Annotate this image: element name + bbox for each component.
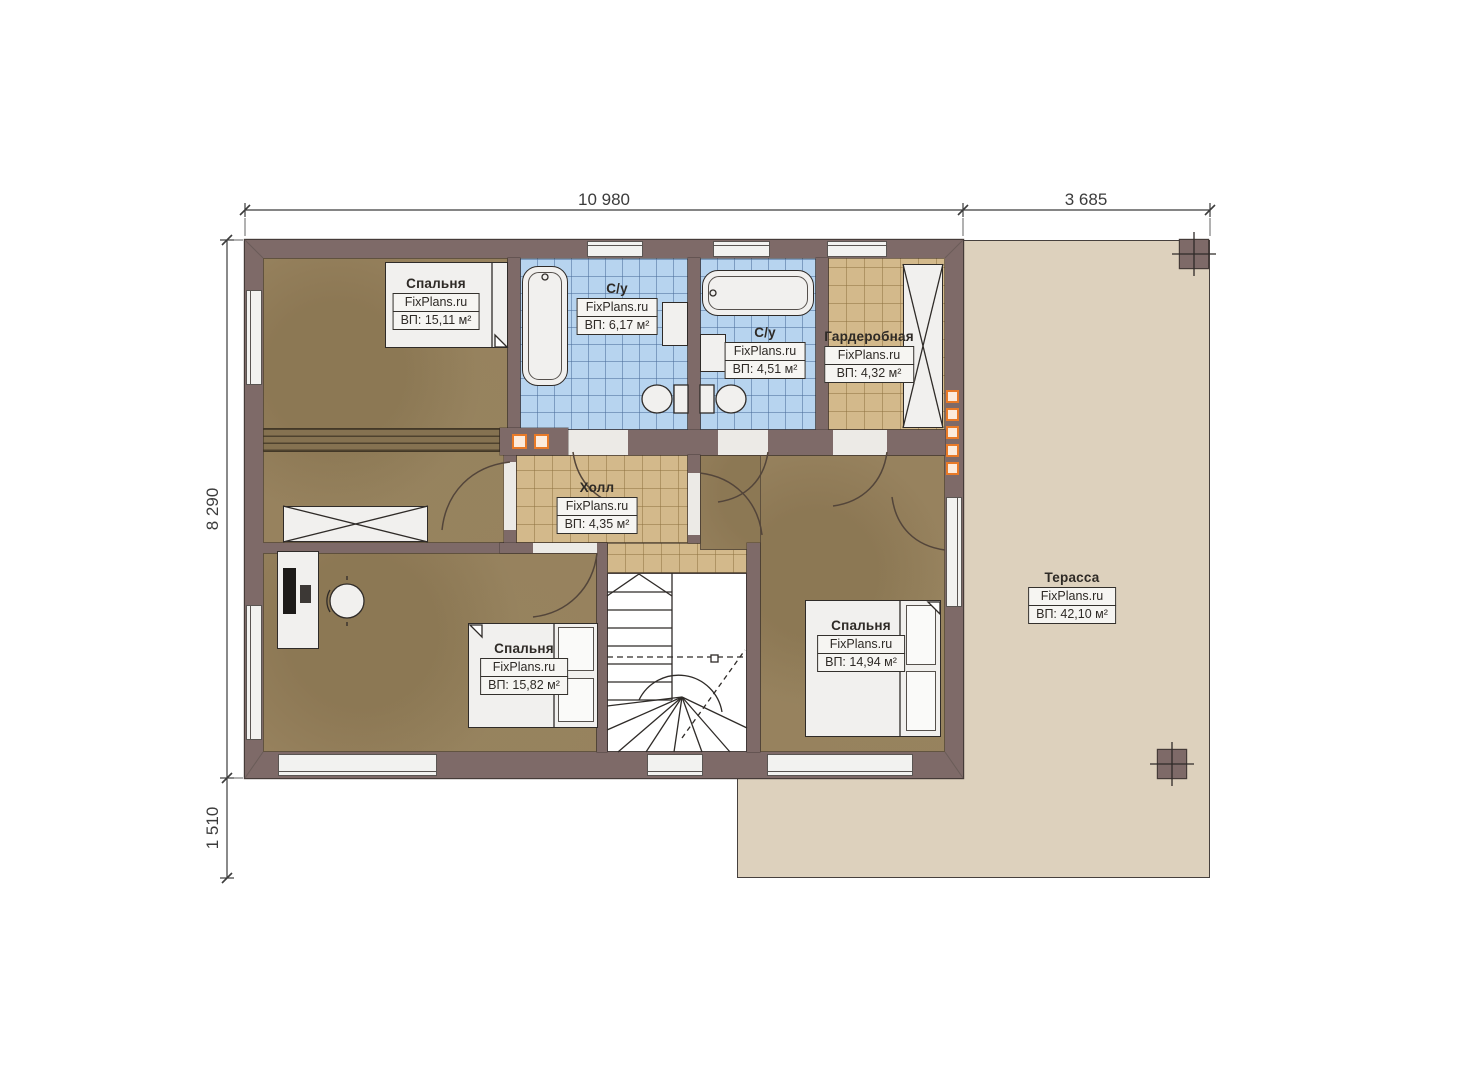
- room-name: Гардеробная: [824, 329, 914, 344]
- room-label-terrace: Терасса FixPlans.ru ВП: 42,10 м²: [1028, 570, 1116, 624]
- dimension-left-lower: 1 510: [203, 807, 223, 850]
- room-name: Спальня: [393, 276, 480, 291]
- area-value: ВП: 42,10 м²: [1028, 605, 1116, 624]
- room-label-hall: Холл FixPlans.ru ВП: 4,35 м²: [557, 480, 638, 534]
- brand-watermark: FixPlans.ru: [1028, 587, 1116, 606]
- area-value: ВП: 6,17 м²: [577, 316, 658, 335]
- brand-watermark: FixPlans.ru: [725, 342, 806, 361]
- staircase: [607, 573, 747, 752]
- room-name: С/у: [725, 325, 806, 340]
- door-arc: [442, 452, 945, 617]
- room-name: Терасса: [1028, 570, 1116, 585]
- brand-watermark: FixPlans.ru: [824, 346, 914, 365]
- brand-watermark: FixPlans.ru: [577, 298, 658, 317]
- room-name: Холл: [557, 480, 638, 495]
- area-value: ВП: 4,51 м²: [725, 360, 806, 379]
- toilet: [700, 385, 746, 413]
- room-label-wardrobe: Гардеробная FixPlans.ru ВП: 4,32 м²: [824, 329, 914, 383]
- brand-watermark: FixPlans.ru: [393, 293, 480, 312]
- room-label-bedroom-1: Спальня FixPlans.ru ВП: 15,11 м²: [393, 276, 480, 330]
- dimension-line: [220, 203, 1215, 883]
- brand-watermark: FixPlans.ru: [817, 635, 905, 654]
- column-axis-mark: [1150, 232, 1216, 786]
- dimension-top-main: 10 980: [578, 190, 630, 210]
- area-value: ВП: 15,82 м²: [480, 676, 568, 695]
- area-value: ВП: 4,32 м²: [824, 364, 914, 383]
- room-label-bathroom-2: С/у FixPlans.ru ВП: 4,51 м²: [725, 325, 806, 379]
- area-value: ВП: 14,94 м²: [817, 653, 905, 672]
- office-chair: [327, 576, 364, 626]
- room-label-bathroom-1: С/у FixPlans.ru ВП: 6,17 м²: [577, 281, 658, 335]
- floor-plan-canvas: 10 980 3 685 8 290 1 510 Спальня FixPlan…: [0, 0, 1473, 1080]
- brand-watermark: FixPlans.ru: [557, 497, 638, 516]
- room-name: Спальня: [817, 618, 905, 633]
- dimension-top-terrace: 3 685: [1065, 190, 1108, 210]
- brand-watermark: FixPlans.ru: [480, 658, 568, 677]
- faucet-icon: [542, 274, 548, 280]
- plan-linework: [0, 0, 1473, 1080]
- room-name: Спальня: [480, 641, 568, 656]
- faucet-icon: [710, 290, 716, 296]
- area-value: ВП: 4,35 м²: [557, 515, 638, 534]
- room-label-bedroom-3: Спальня FixPlans.ru ВП: 14,94 м²: [817, 618, 905, 672]
- area-value: ВП: 15,11 м²: [393, 311, 480, 330]
- room-label-bedroom-2: Спальня FixPlans.ru ВП: 15,82 м²: [480, 641, 568, 695]
- toilet: [642, 385, 688, 413]
- dimension-left-main: 8 290: [203, 488, 223, 531]
- room-name: С/у: [577, 281, 658, 296]
